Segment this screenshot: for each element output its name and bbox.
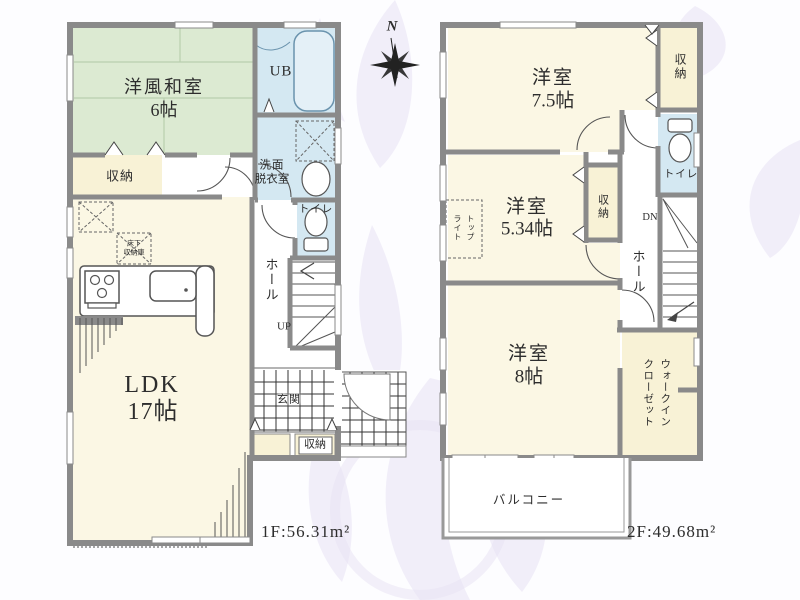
skylight-label-col2: ライト: [453, 215, 461, 242]
washbasin: [302, 162, 330, 196]
dn-label: DN: [642, 213, 657, 224]
bedroom8-label: 洋室: [508, 345, 550, 364]
wic-label-col2: クローゼット: [642, 359, 653, 428]
room-ldk: [73, 197, 252, 540]
balcony-label: バルコニー: [493, 494, 565, 507]
skylight-label-col1: トップ: [466, 215, 474, 242]
entrance-label: 玄関: [277, 395, 301, 406]
wic-label-col1: ウォークイン: [659, 359, 670, 428]
ub-label: UB: [270, 65, 293, 80]
sink: [150, 271, 196, 301]
washitsu-label: 洋風和室: [124, 78, 204, 96]
shoe-box: [252, 434, 290, 456]
washitsu-size: 6帖: [151, 101, 178, 119]
floor1-area-label: 1F:56.31m²: [261, 523, 350, 540]
bedroom75-size: 7.5帖: [532, 92, 575, 111]
floorplan-canvas: 洋風和室 6帖 UB 洗面 脱衣室 収納 トイレ ホール UP LDK 17帖 …: [0, 0, 800, 600]
washroom-label-line1: 洗面: [260, 160, 285, 172]
floor1-plan: [67, 22, 406, 547]
stove: [85, 271, 119, 303]
bathtub: [294, 31, 334, 111]
storage-1f-label: 収納: [106, 170, 134, 183]
washroom-label-line2: 脱衣室: [255, 174, 290, 186]
bedroom534-size: 5.34帖: [501, 220, 553, 239]
floor2-area-label: 2F:49.68m²: [627, 523, 716, 540]
toilet-2f-fixture: [668, 119, 692, 162]
north-label: N: [387, 20, 398, 35]
ldk-size: 17帖: [128, 400, 179, 424]
bedroom75-label: 洋室: [532, 69, 574, 88]
hall-2f-label: ホール: [632, 250, 645, 295]
ldk-label: LDK: [124, 373, 179, 397]
storage-2f-top-label: 収納: [674, 53, 686, 81]
bedroom8-size: 8帖: [515, 368, 544, 387]
underfloor-label-line2: 収納庫: [124, 250, 145, 257]
up-label: UP: [277, 322, 291, 333]
toilet-1f-label: トイレ: [299, 205, 334, 216]
porch-step: [338, 446, 406, 457]
storage-2f-mid-label: 収納: [597, 194, 608, 220]
underfloor-label-line1: 床下: [127, 241, 141, 248]
bedroom534-label: 洋室: [506, 198, 548, 217]
floorplan-svg: [0, 0, 800, 600]
entrance-storage-label: 収納: [304, 440, 326, 451]
hall-1f-label: ホール: [265, 258, 278, 303]
toilet-2f-label: トイレ: [664, 170, 699, 181]
